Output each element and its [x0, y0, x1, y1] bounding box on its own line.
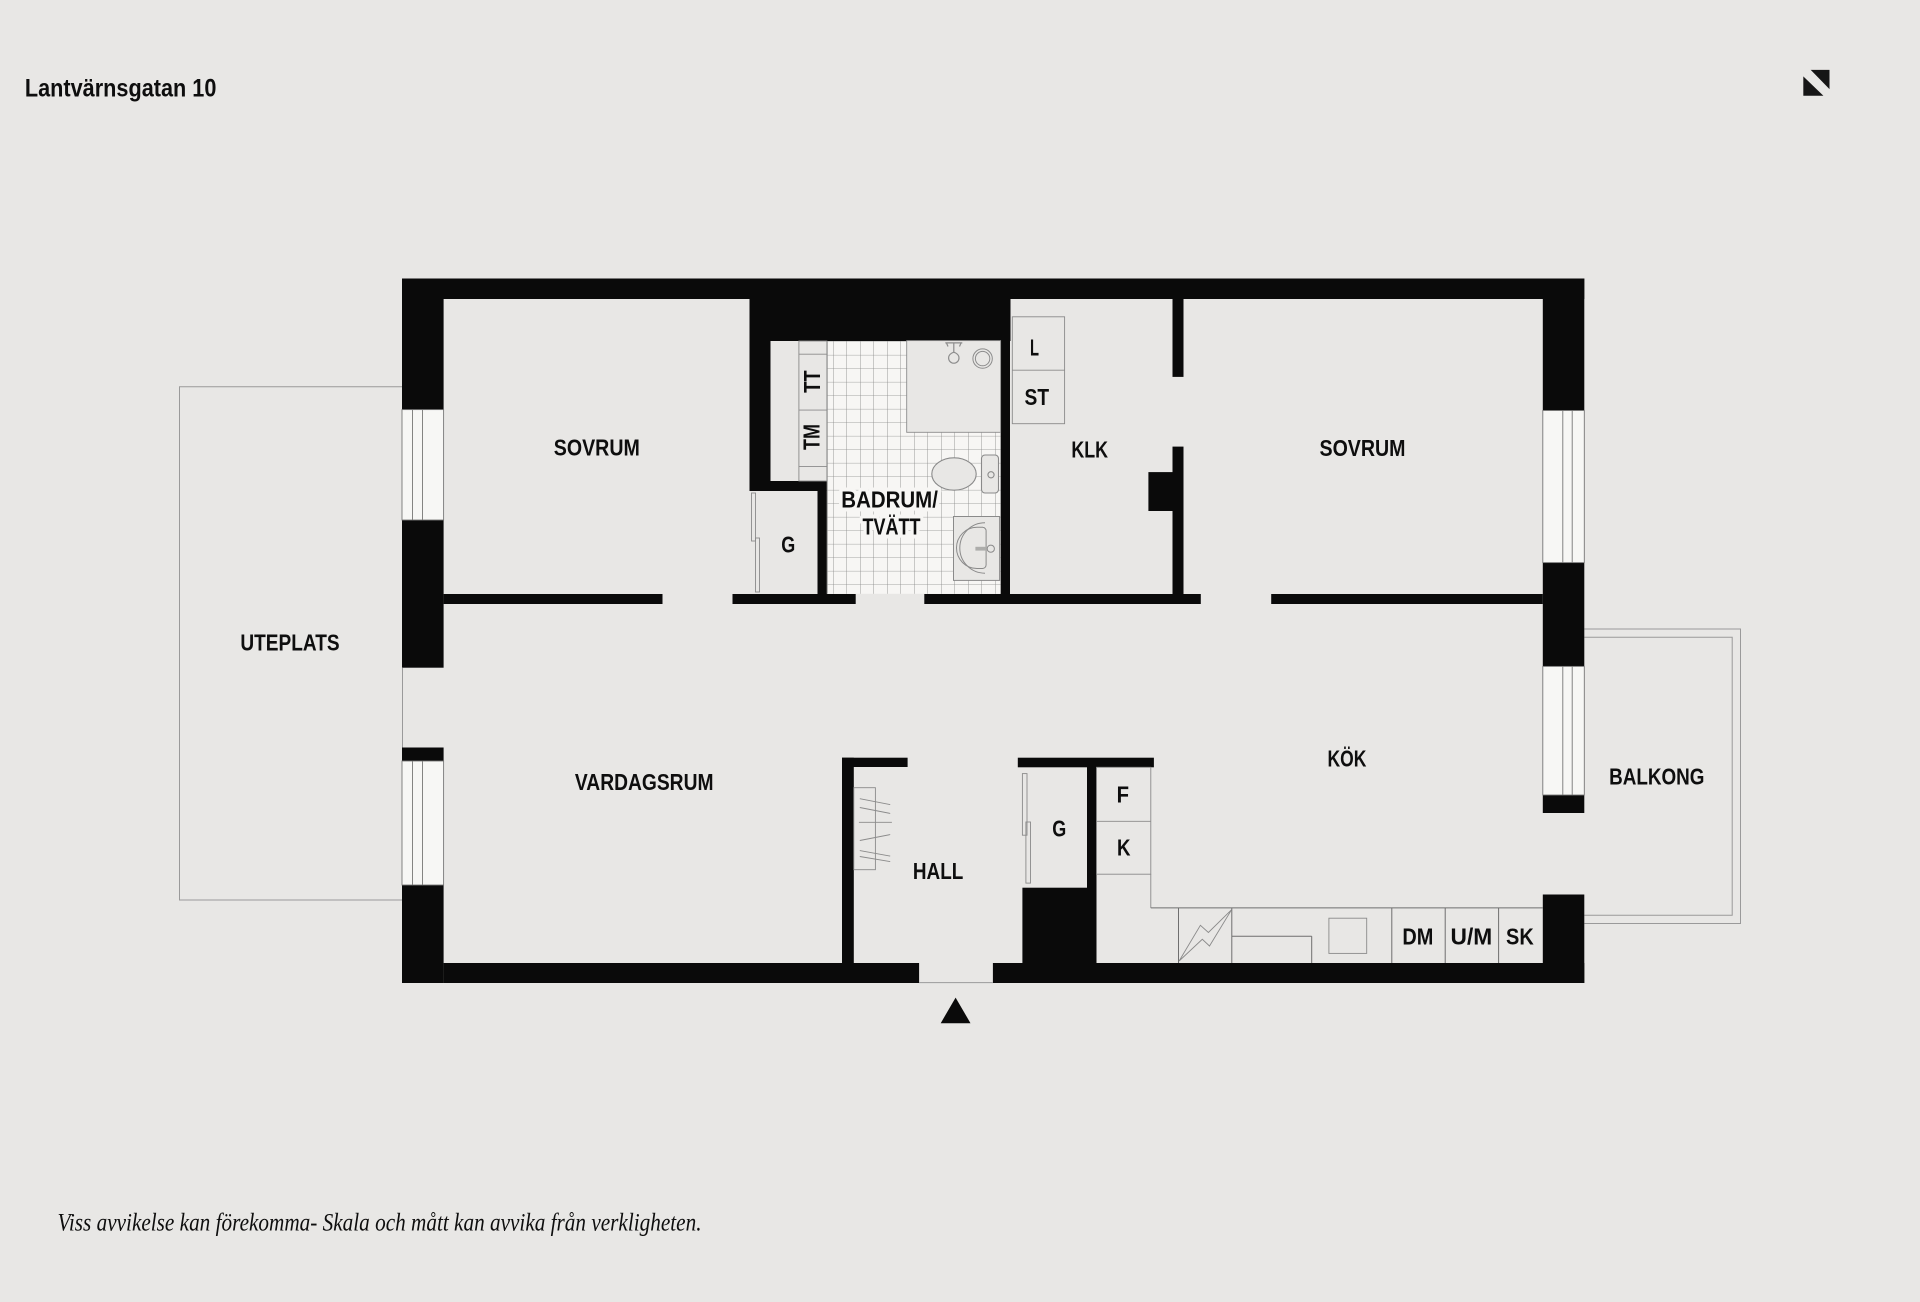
svg-text:U/M: U/M — [1451, 924, 1493, 950]
svg-text:SOVRUM: SOVRUM — [1320, 435, 1406, 461]
svg-text:G: G — [1052, 815, 1066, 841]
svg-text:TT: TT — [799, 370, 825, 393]
svg-text:SOVRUM: SOVRUM — [554, 434, 640, 460]
svg-text:SK: SK — [1506, 924, 1534, 950]
svg-text:KÖK: KÖK — [1328, 746, 1367, 772]
svg-text:G: G — [781, 531, 795, 557]
svg-text:BALKONG: BALKONG — [1609, 763, 1704, 789]
svg-text:Lantvärnsgatan 10: Lantvärnsgatan 10 — [25, 75, 217, 103]
svg-text:ST: ST — [1025, 384, 1050, 410]
svg-text:TM: TM — [799, 424, 825, 450]
svg-text:HALL: HALL — [913, 858, 963, 884]
svg-text:F: F — [1117, 781, 1129, 807]
svg-text:Viss avvikelse kan förekomma-: Viss avvikelse kan förekomma- Skala och … — [58, 1210, 702, 1237]
svg-text:L: L — [1030, 334, 1039, 360]
svg-text:KLK: KLK — [1071, 436, 1108, 462]
svg-text:BADRUM/: BADRUM/ — [841, 487, 938, 513]
svg-text:UTEPLATS: UTEPLATS — [240, 630, 339, 656]
svg-text:VARDAGSRUM: VARDAGSRUM — [575, 769, 714, 795]
svg-text:K: K — [1117, 835, 1131, 861]
svg-text:TVÄTT: TVÄTT — [863, 514, 921, 540]
svg-text:DM: DM — [1402, 924, 1433, 950]
